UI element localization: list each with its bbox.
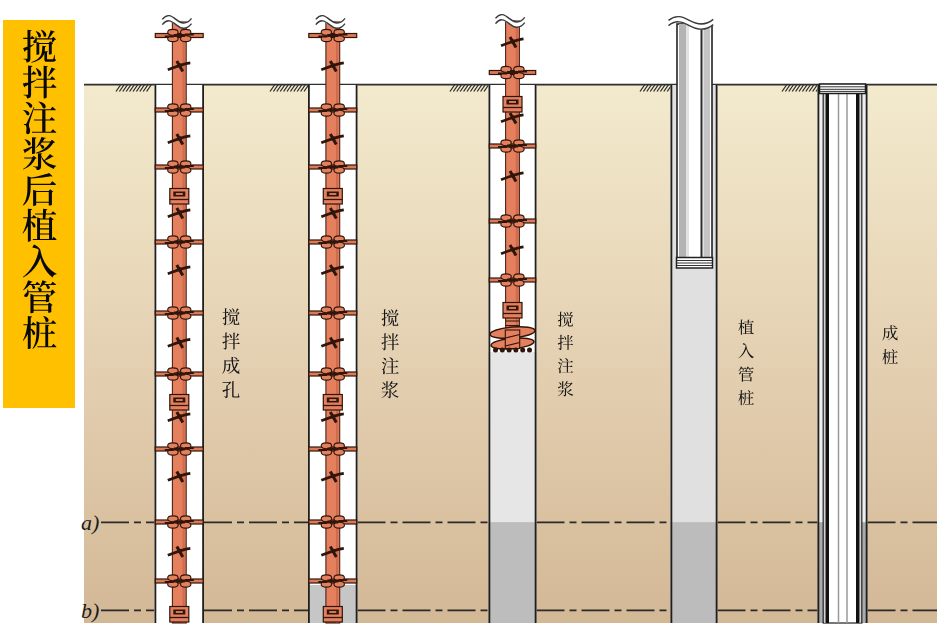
svg-text:b): b) [81,598,99,623]
svg-text:a): a) [81,510,99,535]
